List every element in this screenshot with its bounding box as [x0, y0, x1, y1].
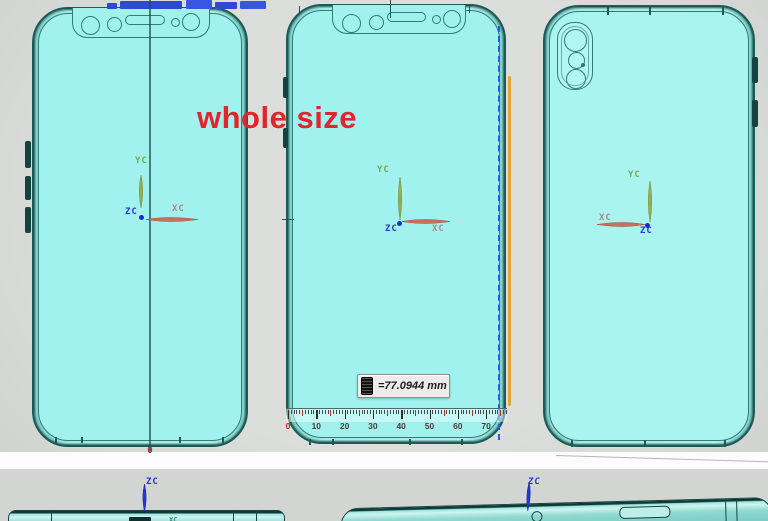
screen-face[interactable] — [38, 13, 242, 441]
camera-lens — [566, 69, 586, 89]
ruler-tick — [308, 410, 309, 414]
antenna-tick — [722, 7, 724, 15]
dimension-annotation[interactable] — [107, 3, 117, 9]
ruler-number: 30 — [365, 421, 381, 431]
y-axis-label: YC — [135, 156, 148, 166]
x-axis-label: XC — [169, 516, 177, 521]
ruler-tick — [367, 410, 368, 414]
ruler-tick — [398, 410, 399, 414]
ruler-tick — [291, 410, 292, 414]
ruler-tick — [322, 410, 323, 414]
ruler-tick — [342, 410, 343, 414]
selection-edge-highlight[interactable] — [498, 26, 500, 440]
antenna-band-line — [736, 499, 738, 521]
cad-viewport: 0 YC ZC XC YC ZC — [0, 0, 768, 521]
ruler-tick — [435, 410, 436, 414]
ruler-tick — [305, 410, 306, 414]
ruler-number: 70 — [478, 421, 494, 431]
ruler-tick — [444, 410, 445, 416]
ruler-tick — [396, 410, 397, 414]
measure-highlight-line — [508, 76, 511, 406]
ruler-tick — [446, 410, 447, 414]
antenna-band-line — [725, 499, 727, 521]
x-axis-label: XC — [172, 204, 185, 214]
sensor-circle — [171, 18, 180, 27]
notch[interactable] — [72, 8, 210, 38]
side-button — [752, 57, 758, 83]
sensor-circle — [369, 15, 384, 30]
side-button — [752, 100, 758, 127]
ruler-tick — [506, 410, 507, 414]
ruler-tick — [418, 410, 419, 414]
ruler-tick — [288, 410, 289, 419]
ruler-tick — [489, 410, 490, 414]
ruler-tick — [350, 410, 351, 414]
side-button — [283, 77, 288, 98]
ruler-tick — [313, 410, 314, 414]
y-axis-label: YC — [377, 165, 390, 175]
sensor-circle — [443, 10, 461, 28]
sensor-circle — [432, 15, 441, 24]
ruler-tick — [325, 410, 326, 414]
ruler-tick — [430, 410, 431, 419]
antenna-tick — [469, 6, 470, 13]
measurement-readout[interactable]: =77.0944 mm — [357, 374, 450, 398]
ruler-tick — [461, 410, 462, 414]
ruler-tick — [387, 410, 388, 416]
antenna-tick — [649, 7, 651, 15]
ruler-tick — [311, 410, 312, 414]
camera-module[interactable] — [557, 22, 593, 90]
ruler-tick — [384, 410, 385, 414]
dimension-annotation[interactable] — [186, 0, 212, 9]
ruler-ticks — [286, 408, 507, 422]
antenna-tick — [309, 439, 311, 445]
y-axis-arrow-icon — [137, 175, 145, 208]
camera-circle — [81, 16, 100, 35]
ruler-number: 60 — [450, 421, 466, 431]
ruler-tick — [379, 410, 380, 414]
z-axis-label: ZC — [125, 207, 138, 217]
ruler-tick — [441, 410, 442, 414]
x-axis-arrow-icon — [146, 216, 198, 223]
speaker-slot — [387, 12, 426, 22]
ruler-tick — [364, 410, 365, 414]
ruler-tick — [421, 410, 422, 414]
ruler-tick — [362, 410, 363, 414]
ruler-tick — [381, 410, 382, 414]
ruler-tick — [373, 410, 374, 419]
antenna-tick — [55, 437, 57, 443]
button-detail — [531, 511, 542, 521]
notch[interactable] — [332, 5, 466, 34]
ruler-number: 0 — [280, 421, 296, 431]
ruler-tick — [463, 410, 464, 414]
antenna-band-line — [233, 511, 234, 521]
ruler-tick — [359, 410, 360, 416]
edge-tick — [282, 219, 294, 220]
ruler-tick — [486, 410, 487, 419]
antenna-tick — [409, 439, 411, 445]
ruler-tick — [475, 410, 476, 414]
ruler-tick — [483, 410, 484, 414]
flash-dot — [581, 63, 585, 67]
ruler-tick — [390, 410, 391, 414]
side-button — [25, 141, 31, 168]
y-axis-arrow-icon — [396, 177, 404, 220]
ruler-tick — [424, 410, 425, 414]
z-axis-label: ZC — [385, 224, 398, 234]
sensor-circle — [107, 17, 122, 32]
ruler-tick — [319, 410, 320, 414]
ruler-tick — [478, 410, 479, 414]
ruler-tick — [353, 410, 354, 414]
y-axis-label: YC — [628, 170, 641, 180]
z-axis-arrow-icon — [141, 484, 148, 512]
ruler-tick — [480, 410, 481, 414]
ruler-tick — [345, 410, 346, 419]
camera-circle — [342, 14, 361, 33]
ruler-number: 40 — [393, 421, 409, 431]
ruler-number: 50 — [422, 421, 438, 431]
ruler-tick — [492, 410, 493, 414]
y-axis-arrow-icon — [646, 181, 654, 222]
ruler-tick — [401, 410, 402, 419]
antenna-band-line — [256, 511, 257, 521]
ruler-tick — [497, 410, 498, 414]
antenna-tick — [644, 440, 646, 447]
center-axis-line — [149, 0, 151, 453]
ruler-tick — [328, 410, 329, 414]
ruler-tick — [330, 410, 331, 416]
ruler-tick — [413, 410, 414, 414]
ruler-tick — [469, 410, 470, 414]
axis-origin-dot — [139, 215, 144, 220]
antenna-tick — [179, 437, 181, 443]
side-button — [25, 176, 31, 200]
separator-band — [0, 452, 768, 469]
ruler-tick — [316, 410, 317, 419]
phone-front-left-view[interactable] — [32, 7, 248, 447]
ruler-tick — [410, 410, 411, 414]
antenna-tick — [571, 440, 573, 447]
ruler-tick — [356, 410, 357, 414]
antenna-tick — [461, 439, 463, 445]
ruler-tick — [438, 410, 439, 414]
ruler-tick — [302, 410, 303, 416]
ruler-tick — [336, 410, 337, 414]
dimension-annotation[interactable] — [240, 1, 266, 9]
x-axis-arrow-icon — [597, 221, 645, 228]
ruler-tick — [376, 410, 377, 414]
ruler-tick — [415, 410, 416, 416]
ruler-tick — [333, 410, 334, 414]
ruler-tick — [466, 410, 467, 414]
ruler-tick — [370, 410, 371, 414]
ruler-tick — [294, 410, 295, 414]
ruler-tick — [458, 410, 459, 419]
ruler-number: 20 — [337, 421, 353, 431]
grid-icon — [361, 377, 373, 395]
ruler: 010203040506070 — [286, 408, 507, 434]
origin-zero-label: 0 — [144, 445, 156, 455]
antenna-tick — [81, 437, 83, 443]
antenna-band-line — [51, 511, 52, 521]
speaker-slot — [125, 15, 165, 25]
antenna-tick — [222, 437, 224, 443]
ruler-tick — [427, 410, 428, 414]
dimension-annotation[interactable] — [120, 1, 182, 9]
ruler-tick — [407, 410, 408, 414]
ruler-tick — [347, 410, 348, 414]
antenna-tick — [299, 6, 300, 13]
antenna-tick — [724, 440, 726, 447]
ruler-tick — [500, 410, 501, 416]
ruler-tick — [449, 410, 450, 414]
x-axis-label: XC — [432, 224, 445, 234]
ruler-tick — [432, 410, 433, 414]
ruler-tick — [296, 410, 297, 414]
z-axis-label: ZC — [640, 226, 653, 236]
side-button — [25, 207, 31, 233]
connector-detail — [129, 517, 151, 521]
ruler-tick — [393, 410, 394, 414]
sensor-circle — [182, 13, 200, 31]
view-title: whole size — [197, 100, 357, 136]
side-button — [619, 506, 670, 519]
ruler-tick — [452, 410, 453, 414]
ruler-tick — [339, 410, 340, 414]
ruler-tick — [404, 410, 405, 414]
ruler-tick — [299, 410, 300, 414]
ruler-tick — [503, 410, 504, 414]
center-axis-line — [390, 0, 391, 18]
ruler-number: 10 — [308, 421, 324, 431]
antenna-tick — [332, 439, 334, 445]
dimension-annotation[interactable] — [215, 2, 237, 9]
ruler-tick — [455, 410, 456, 414]
ruler-tick — [495, 410, 496, 414]
ruler-tick — [472, 410, 473, 416]
camera-lens — [564, 29, 587, 52]
antenna-tick — [607, 7, 609, 15]
measurement-value: =77.0944 mm — [378, 380, 447, 392]
